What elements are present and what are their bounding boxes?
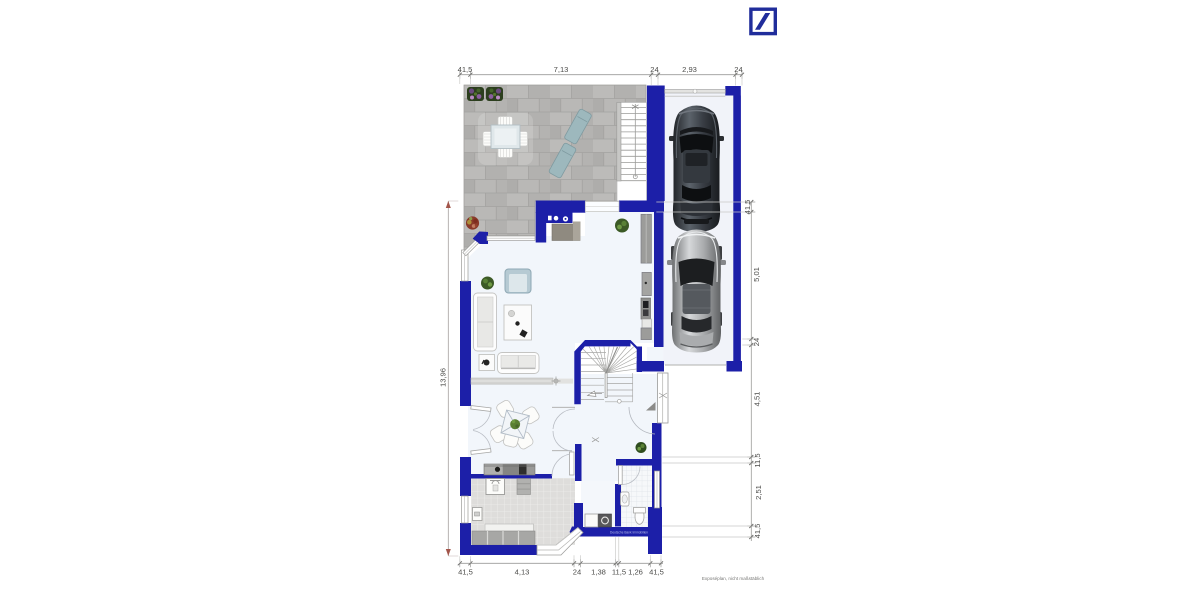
svg-text:24: 24 [734,65,742,74]
svg-text:41,5: 41,5 [743,200,752,215]
svg-text:4,51: 4,51 [753,392,762,407]
svg-text:13,96: 13,96 [439,368,448,387]
svg-text:Deutsche Bank Immobilien: Deutsche Bank Immobilien [610,531,648,535]
svg-text:41,5: 41,5 [458,65,473,74]
svg-text:1,38: 1,38 [591,568,606,577]
svg-text:24: 24 [752,338,761,346]
svg-text:5,01: 5,01 [752,267,761,282]
svg-text:Exposéplan, nicht maßstäblich: Exposéplan, nicht maßstäblich [702,576,765,581]
svg-text:4,13: 4,13 [515,568,530,577]
svg-text:11,5: 11,5 [753,453,762,467]
svg-text:24: 24 [650,65,658,74]
svg-text:41,5: 41,5 [458,568,473,577]
svg-text:2,51: 2,51 [754,485,763,500]
svg-text:2,93: 2,93 [682,65,697,74]
svg-text:1,26: 1,26 [628,568,643,577]
svg-text:11,5: 11,5 [612,568,626,577]
svg-text:7,13: 7,13 [554,65,569,74]
svg-text:24: 24 [573,568,581,577]
svg-text:41,5: 41,5 [649,568,664,577]
svg-text:41,5: 41,5 [753,524,762,539]
